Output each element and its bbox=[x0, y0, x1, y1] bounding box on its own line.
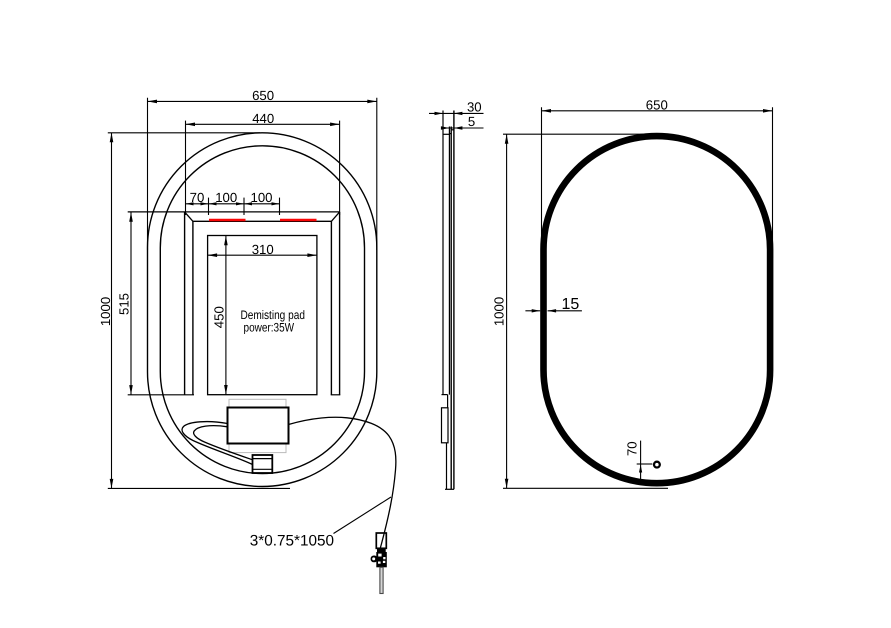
svg-text:70: 70 bbox=[190, 190, 205, 205]
svg-text:650: 650 bbox=[252, 88, 274, 103]
svg-text:515: 515 bbox=[117, 293, 132, 315]
svg-text:1000: 1000 bbox=[492, 297, 507, 326]
svg-text:70: 70 bbox=[625, 441, 640, 456]
svg-text:100: 100 bbox=[215, 190, 237, 205]
svg-text:1000: 1000 bbox=[98, 297, 113, 326]
svg-text:15: 15 bbox=[562, 296, 580, 313]
svg-text:650: 650 bbox=[646, 97, 668, 112]
svg-text:310: 310 bbox=[252, 242, 274, 257]
svg-text:30: 30 bbox=[467, 99, 482, 114]
svg-text:3*0.75*1050: 3*0.75*1050 bbox=[250, 532, 334, 549]
svg-text:450: 450 bbox=[211, 306, 226, 328]
svg-text:power:35W: power:35W bbox=[244, 320, 295, 334]
svg-text:440: 440 bbox=[252, 111, 274, 126]
svg-text:5: 5 bbox=[468, 114, 475, 129]
svg-text:100: 100 bbox=[250, 190, 272, 205]
